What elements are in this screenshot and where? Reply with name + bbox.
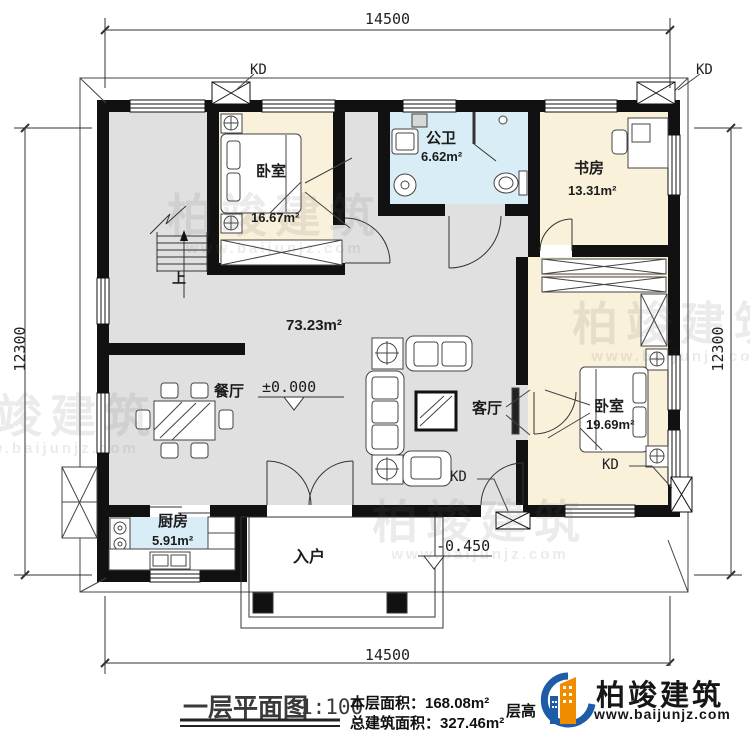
door-entry-double xyxy=(267,461,353,505)
door-hallway-south xyxy=(481,463,523,505)
entry-porch xyxy=(241,517,443,628)
brand-logo: 柏竣建筑 www.baijunjz.com xyxy=(536,666,750,738)
monitor xyxy=(632,124,650,142)
window-dining-left-2 xyxy=(97,393,109,453)
bedroom2-label: 卧室 xyxy=(594,399,624,416)
dining-label: 餐厅 xyxy=(214,384,244,401)
window-bedroom2-bottom xyxy=(565,505,635,517)
door-bathroom xyxy=(449,216,501,268)
living-label: 客厅 xyxy=(472,401,502,418)
wardrobe2 xyxy=(641,294,667,346)
doors xyxy=(150,112,576,513)
bedroom1-label: 卧室 xyxy=(256,164,286,181)
window-kitchen-bottom xyxy=(150,570,200,582)
dimension-left: 12300 xyxy=(11,319,29,379)
bedroom1-furniture xyxy=(221,114,342,265)
level-triangle-main xyxy=(284,397,304,410)
bedroom2-area: 19.69m² xyxy=(586,418,634,432)
bedroom2-furniture xyxy=(580,294,668,467)
window-study xyxy=(545,100,617,112)
hall-level: ±0.000 xyxy=(262,379,316,396)
window-bedroom2-right-1 xyxy=(668,355,680,410)
window-bathroom xyxy=(403,100,456,112)
ac-unit-top-right xyxy=(637,82,675,104)
stairs-up-label: 上 xyxy=(172,271,186,286)
door-toilet-partition xyxy=(474,112,496,161)
plan-linework xyxy=(0,0,750,741)
side-platform xyxy=(62,467,97,538)
kd-label-hall-south: KD xyxy=(450,469,467,485)
floor-area-text: 本层面积：168.08m² xyxy=(350,692,489,713)
floor-plan-drawing: 柏竣建筑www.baijunjz.com 柏竣建筑www.baijunjz.co… xyxy=(0,0,750,741)
drawing-title: 一层平面图 xyxy=(183,688,308,724)
window-study-right xyxy=(668,135,680,195)
bathroom-area: 6.62m² xyxy=(421,150,462,164)
kitchen-area: 5.91m² xyxy=(152,534,193,548)
hall-area: 73.23m² xyxy=(286,318,342,335)
study-furniture xyxy=(612,118,668,168)
bathroom-label: 公卫 xyxy=(426,131,456,148)
closet-row xyxy=(542,259,666,292)
desk-chair xyxy=(612,130,627,154)
dimension-right: 12300 xyxy=(709,319,727,379)
window-bedroom1 xyxy=(262,100,335,112)
study-area: 13.31m² xyxy=(568,184,616,198)
kd-label-top-left: KD xyxy=(250,62,267,78)
door-bedroom1 xyxy=(345,218,390,263)
brand-site: www.baijunjz.com xyxy=(594,706,731,722)
shower-head xyxy=(499,116,507,124)
level-triangle-entry xyxy=(424,556,444,569)
dimension-bottom: 14500 xyxy=(105,646,670,664)
entry-label: 入户 xyxy=(293,549,325,567)
kitchen-label: 厨房 xyxy=(158,514,188,531)
kd-label-bedroom2: KD xyxy=(602,457,619,473)
ac-unit-top-left xyxy=(212,82,250,104)
door-study xyxy=(540,219,572,251)
ac-unit-hall-south xyxy=(496,512,530,529)
tv-panel xyxy=(512,388,519,434)
wardrobe1 xyxy=(221,240,342,265)
kd-label-top-right: KD xyxy=(696,62,713,78)
window-stairhall xyxy=(130,100,205,112)
toilet xyxy=(494,171,527,195)
brand-logo-icon xyxy=(538,668,596,734)
total-area-text: 总建筑面积：327.46m² xyxy=(350,712,504,733)
ac-unit-bedroom2-right xyxy=(671,477,692,512)
window-dining-left-1 xyxy=(97,278,109,324)
study-label: 书房 xyxy=(574,161,604,178)
dimension-top: 14500 xyxy=(105,10,670,28)
floor-drain xyxy=(412,114,427,127)
entry-level: -0.450 xyxy=(436,538,490,555)
bedroom1-area: 16.67m² xyxy=(251,211,299,225)
